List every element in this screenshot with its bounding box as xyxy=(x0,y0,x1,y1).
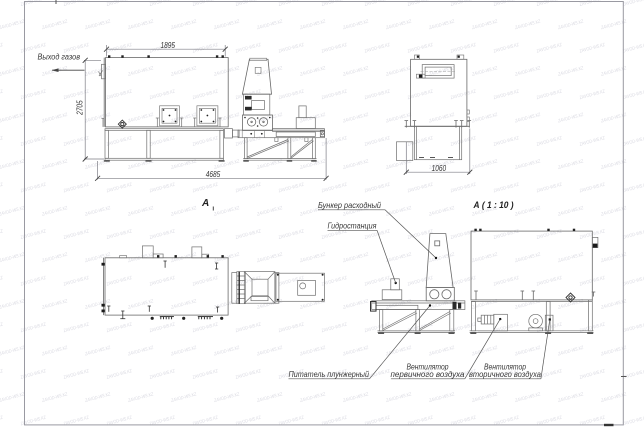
svg-text:Выход газов: Выход газов xyxy=(38,53,81,62)
svg-text:Гидростанция: Гидростанция xyxy=(328,222,378,231)
svg-text:первичного воздуха: первичного воздуха xyxy=(391,370,466,379)
svg-text:А ( 1 : 10 ): А ( 1 : 10 ) xyxy=(473,200,514,211)
svg-text:2705: 2705 xyxy=(76,100,85,116)
svg-text:Бункер расходный: Бункер расходный xyxy=(318,201,382,210)
svg-text:4685: 4685 xyxy=(206,170,221,179)
svg-text:1060: 1060 xyxy=(432,164,447,173)
svg-text:А: А xyxy=(201,198,209,209)
svg-text:Питатель плунжерный: Питатель плунжерный xyxy=(289,370,370,379)
svg-text:1895: 1895 xyxy=(160,41,175,50)
svg-text:вторичного воздуха: вторичного воздуха xyxy=(469,370,542,379)
